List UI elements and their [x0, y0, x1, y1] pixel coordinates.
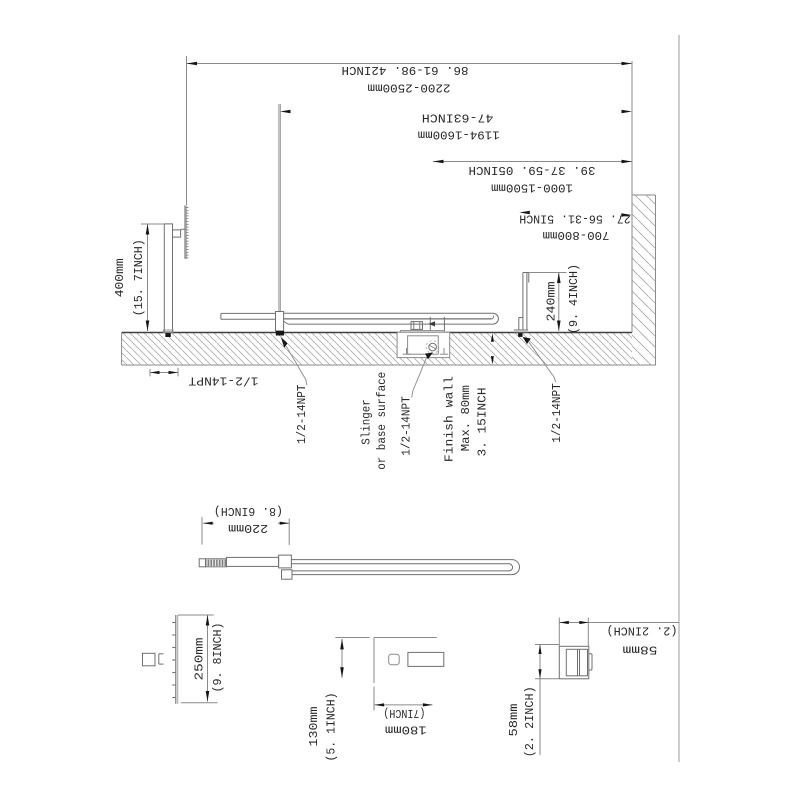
- svg-text:(5. 1INCH): (5. 1INCH): [324, 693, 338, 762]
- svg-text:(7INCH): (7INCH): [383, 706, 425, 720]
- svg-text:1/2-14NPT: 1/2-14NPT: [400, 396, 414, 456]
- svg-text:(15. 7INCH): (15. 7INCH): [132, 239, 146, 316]
- svg-text:180mm: 180mm: [385, 722, 427, 736]
- svg-text:(8. 6INCH): (8. 6INCH): [214, 504, 283, 518]
- svg-text:1/2-14NPT: 1/2-14NPT: [189, 374, 259, 388]
- svg-text:(2. 2INCH): (2. 2INCH): [607, 624, 678, 638]
- svg-text:130mm: 130mm: [307, 707, 321, 747]
- svg-text:Max. 80mm: Max. 80mm: [459, 385, 473, 451]
- svg-text:1000-1500mm: 1000-1500mm: [491, 180, 573, 194]
- svg-text:(9. 4INCH): (9. 4INCH): [567, 264, 581, 334]
- svg-text:47-63INCH: 47-63INCH: [422, 111, 494, 125]
- svg-text:3. 15INCH: 3. 15INCH: [475, 388, 489, 457]
- svg-text:58mm: 58mm: [507, 704, 521, 737]
- svg-text:58mm: 58mm: [623, 643, 658, 657]
- svg-text:220mm: 220mm: [228, 521, 268, 535]
- svg-text:2200-2500mm: 2200-2500mm: [368, 80, 451, 94]
- svg-text:700-800mm: 700-800mm: [543, 228, 610, 242]
- svg-text:1/2-14NPT: 1/2-14NPT: [295, 385, 309, 445]
- svg-text:240mm: 240mm: [545, 282, 559, 322]
- svg-text:86. 61-98. 42INCH: 86. 61-98. 42INCH: [342, 63, 469, 77]
- svg-text:250mm: 250mm: [193, 638, 207, 681]
- svg-text:400mm: 400mm: [113, 258, 127, 297]
- svg-text:(2. 2INCH): (2. 2INCH): [523, 686, 537, 757]
- svg-text:1/2-14NPT: 1/2-14NPT: [550, 383, 564, 443]
- svg-text:Finish wall: Finish wall: [442, 376, 456, 462]
- svg-text:Slinger: Slinger: [360, 399, 374, 445]
- svg-text:or base surface: or base surface: [375, 372, 389, 470]
- svg-text:(9. 8INCH): (9. 8INCH): [211, 623, 225, 693]
- svg-text:39. 37-59. 05INCH: 39. 37-59. 05INCH: [469, 163, 596, 177]
- svg-text:27. 56-31. 5INCH: 27. 56-31. 5INCH: [519, 211, 631, 225]
- svg-text:1194-1600mm: 1194-1600mm: [418, 127, 500, 141]
